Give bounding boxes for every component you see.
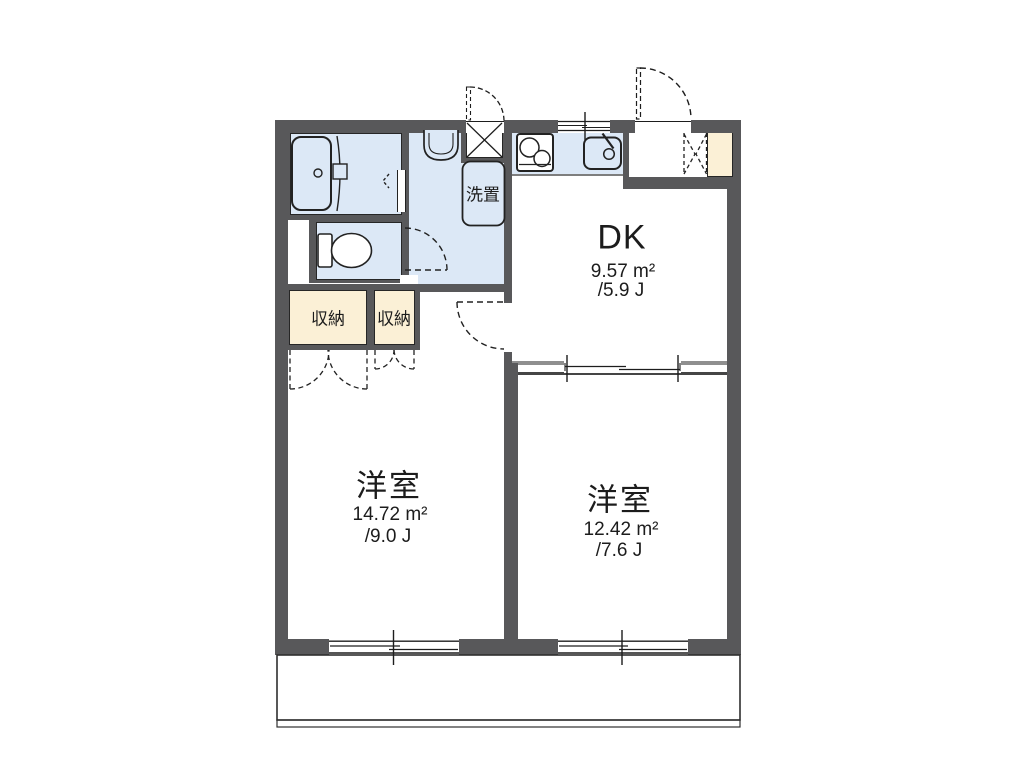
- floorplan-canvas: DK 9.57 m² /5.9 J 洋室 14.72 m² /9.0 J 洋室 …: [0, 0, 1016, 772]
- room-right-area: 12.42 m²: [584, 519, 659, 541]
- room-right-jo: /7.6 J: [596, 540, 642, 562]
- entrance-door: [635, 68, 691, 133]
- closet-right-label: 収納: [377, 305, 411, 330]
- window-room-right: [558, 630, 688, 665]
- washbasin: [424, 130, 458, 160]
- room-right-title: 洋室: [587, 475, 653, 520]
- stove: [517, 134, 553, 171]
- laundry-label: 洗置: [466, 181, 500, 206]
- closet-left-label: 収納: [311, 305, 345, 330]
- bath-divider: [333, 136, 347, 211]
- dk-jo: /5.9 J: [598, 280, 644, 302]
- dk-title: DK: [597, 219, 646, 258]
- room-left-jo: /9.0 J: [365, 526, 411, 548]
- window-kitchen: [558, 112, 610, 140]
- bath-door: [383, 170, 406, 212]
- room-left-area: 14.72 m²: [353, 504, 428, 526]
- entrance-closet-doors: [684, 133, 707, 175]
- hall-door-arc: [405, 228, 447, 270]
- bathtub: [292, 137, 331, 210]
- window-room-left: [329, 630, 459, 665]
- balcony: [277, 655, 740, 727]
- room-left-title: 洋室: [356, 461, 422, 506]
- closet-doors-arcs: [290, 350, 414, 389]
- toilet: [318, 234, 372, 268]
- kitchen-sink: [584, 134, 621, 170]
- room-left-door-arc: [457, 302, 504, 349]
- sliding-door-dk: [564, 355, 681, 382]
- fixture-overlay: [0, 0, 1016, 772]
